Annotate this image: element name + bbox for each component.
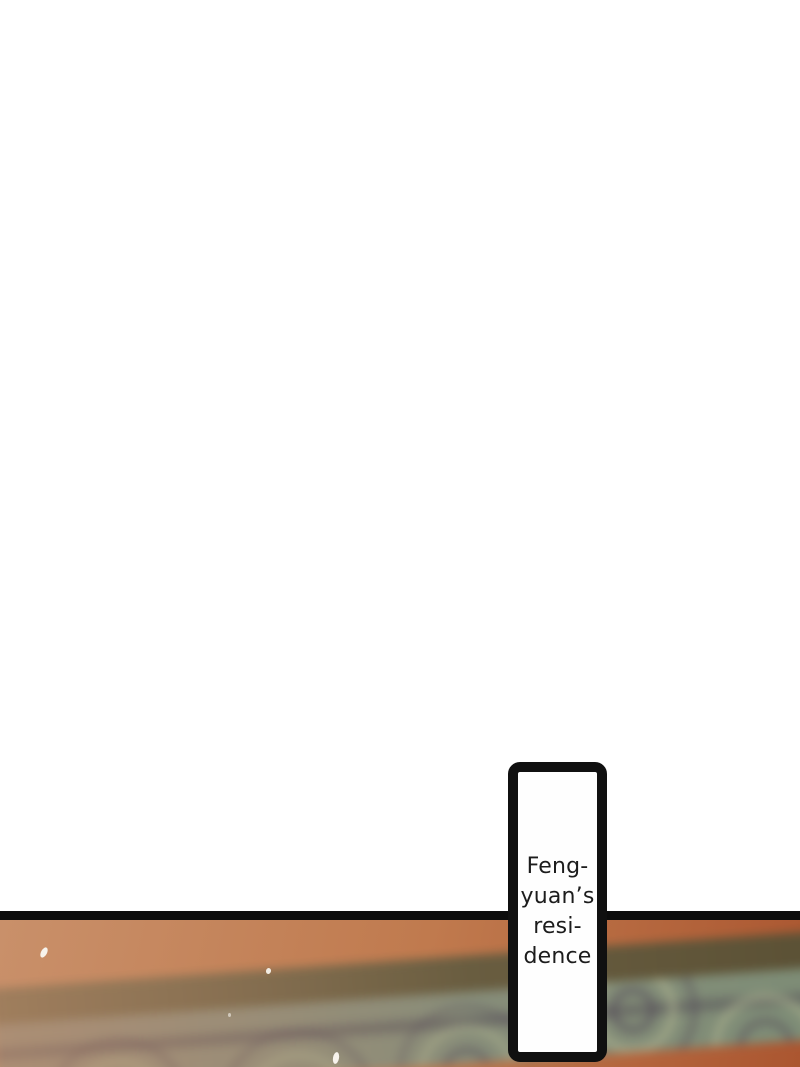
panel-divider-line xyxy=(0,911,800,920)
caption-line: dence xyxy=(518,942,597,972)
caption-line: yuan’s xyxy=(518,882,597,912)
caption-line: resi- xyxy=(518,912,597,942)
comic-page: Feng- yuan’s resi- dence xyxy=(0,0,800,1067)
location-caption-box: Feng- yuan’s resi- dence xyxy=(508,762,607,1062)
blank-gutter xyxy=(0,0,800,911)
bottom-panel xyxy=(0,920,800,1067)
caption-line: Feng- xyxy=(518,852,597,882)
petal-speck xyxy=(228,1013,231,1017)
petal-speck xyxy=(39,946,49,959)
painted-beam-photo xyxy=(0,931,800,1067)
